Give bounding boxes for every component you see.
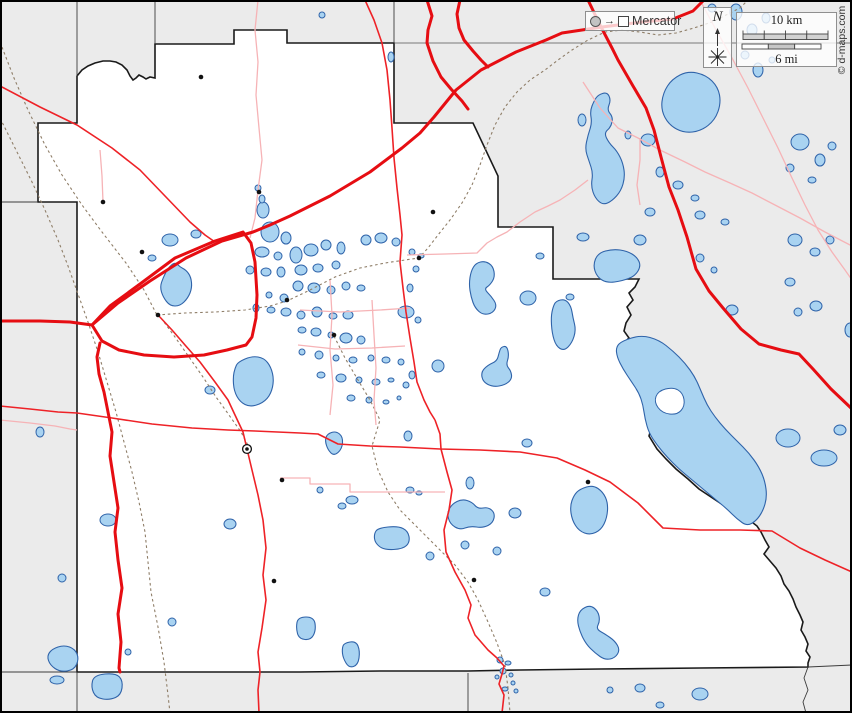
scalebar-km-label: 10 km bbox=[737, 13, 836, 28]
scalebar-mi-bar bbox=[742, 44, 821, 49]
scalebar-box: 10 km 6 mi bbox=[736, 12, 837, 67]
city-dot bbox=[140, 250, 145, 255]
projection-arrow-icon: → bbox=[604, 16, 615, 27]
projected-square-icon bbox=[618, 16, 629, 27]
scalebar-bars bbox=[737, 28, 836, 52]
copyright-notice: © d-maps.com bbox=[833, 2, 852, 78]
county-seat-dot bbox=[245, 447, 249, 451]
city-dot bbox=[586, 480, 591, 485]
map-page: → Mercator N 10 km 6 mi © d-maps.com bbox=[0, 0, 852, 713]
city-dot bbox=[417, 256, 422, 261]
city-dot bbox=[280, 478, 285, 483]
city-dot bbox=[272, 579, 277, 584]
city-dot bbox=[199, 75, 204, 80]
north-label: N bbox=[704, 9, 731, 26]
projection-box: → Mercator bbox=[585, 11, 675, 31]
scalebar-mi-label: 6 mi bbox=[737, 52, 836, 67]
city-dot bbox=[332, 333, 337, 338]
compass-icon bbox=[704, 26, 731, 68]
city-dot bbox=[431, 210, 436, 215]
city-dot bbox=[285, 298, 290, 303]
scalebar-km-bar bbox=[743, 31, 828, 40]
globe-circle-icon bbox=[590, 16, 601, 27]
projection-label: Mercator bbox=[632, 14, 681, 28]
city-dot bbox=[472, 578, 477, 583]
city-dot bbox=[101, 200, 106, 205]
city-dot bbox=[156, 313, 161, 318]
map-canvas bbox=[0, 0, 852, 713]
north-arrow-icon bbox=[715, 28, 720, 34]
north-indicator-box: N bbox=[703, 7, 732, 68]
city-dot bbox=[257, 190, 262, 195]
